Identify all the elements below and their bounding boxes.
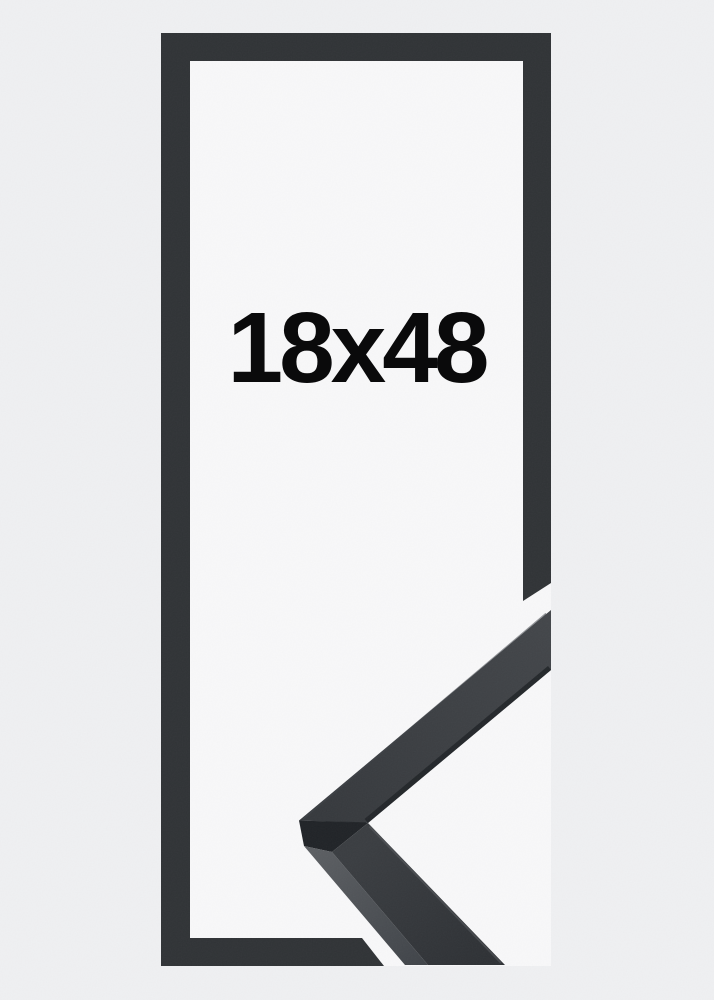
photo-grain-overlay	[0, 0, 714, 1000]
frame-illustration	[0, 0, 714, 1000]
product-image: 18x48	[0, 0, 714, 1000]
size-label: 18x48	[190, 298, 523, 398]
